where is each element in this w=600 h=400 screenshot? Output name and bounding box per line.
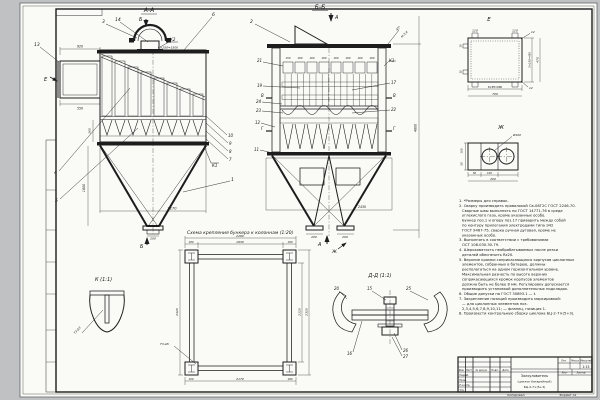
- note-line: соприкасающихся кромок корпусов элементо…: [462, 277, 554, 281]
- callout-16: 16: [347, 351, 353, 356]
- plan-dim-bot-mid: 2170: [236, 377, 244, 381]
- callout-k2: К2: [170, 37, 176, 42]
- dim-hopper-height: 1800: [82, 184, 86, 192]
- dim-tab-left: 110: [472, 29, 478, 33]
- view-zh-label: Ж: [497, 125, 505, 131]
- hole-diameter: Ø100: [512, 132, 521, 137]
- section-b-bottom-label: Б: [140, 244, 144, 250]
- dim-right-chain: 3×150=450: [528, 52, 532, 68]
- bb-dim-2: 190: [310, 56, 315, 60]
- detail-dd-label: Д-Д (1:1): [367, 273, 391, 279]
- callout-5: 5: [55, 198, 58, 204]
- callout-26: 26: [403, 348, 409, 353]
- note-line: должна быть не более 8 мм. Регулировку д…: [462, 282, 569, 286]
- dim-thk-top: 10: [460, 44, 463, 48]
- note-line: 2,3,4,5,6,7,8,9,10,11; — фланец, позиция…: [462, 307, 546, 311]
- note-line: углекислого газа, кроме указанных особо.: [462, 214, 545, 218]
- detail-k-label: К (1:1): [95, 277, 112, 283]
- callout-4: 4: [54, 170, 57, 176]
- plan-dim-top-r: 180: [288, 240, 293, 244]
- callout-k1-bb: К1: [389, 58, 394, 63]
- note-line: ОСТ 108.030.30-79.: [462, 243, 499, 247]
- note-line: — для циклонных элементов поз.: [462, 302, 528, 306]
- callout-22: 22: [391, 107, 397, 112]
- callout-k1: К1: [212, 163, 217, 168]
- note-line: 2. Сварку производить проволокой Св-08Г2…: [459, 204, 576, 208]
- tb-doc: № докум.: [476, 369, 488, 372]
- plan-dim-right-inner: 2120: [298, 308, 302, 316]
- section-a-top-label: А: [334, 15, 339, 21]
- bb-dim-3: 190: [322, 56, 327, 60]
- plan-weld: Т3-Δ5: [160, 342, 169, 346]
- drawing-name-1: Золоуловитель: [521, 374, 548, 378]
- callout-15: 15: [367, 286, 373, 291]
- dim-frame: 2430: [358, 205, 366, 209]
- tb-date: Дата: [502, 369, 509, 372]
- callout-13: 13: [34, 42, 40, 48]
- hole-top-right: 12: [531, 30, 535, 34]
- tb-sheets: Листов: [577, 372, 587, 375]
- note-line: 4. Шероховатость необрабатываемых после …: [459, 248, 559, 252]
- tb-nkontr: Н.контр.: [460, 384, 471, 387]
- plan-dim-top-mid: 1930: [236, 240, 244, 244]
- note-line: 3. Выполнять в соответствии с требования…: [459, 238, 549, 242]
- section-v-right: В: [393, 93, 396, 98]
- section-b-top-label: Б: [139, 17, 143, 23]
- note-line: элементов, собранных в батарею, должны: [462, 263, 546, 267]
- bb-dim-0: 150: [286, 56, 291, 60]
- dim-pitch: 6×250=1500: [158, 46, 178, 50]
- bb-dim-6: 190: [358, 56, 363, 60]
- drawing-name-3: БЦ-2-7×(5+3): [524, 385, 546, 389]
- dim-height: 4800: [414, 124, 418, 132]
- note-line: 5. Верхние кромки соприкасающихся корпус…: [459, 258, 575, 262]
- plan-dim-right-outer: 2320: [305, 308, 309, 316]
- view-bb-label: Б-Б: [315, 4, 325, 11]
- callout-25: 25: [406, 286, 412, 291]
- plan-dim-top-total: 2290: [236, 234, 244, 238]
- callout-17: 17: [391, 80, 397, 85]
- tb-list: Лист: [466, 369, 473, 372]
- dim-bot-total: 200: [490, 177, 496, 181]
- tb-scale-lbl: Масштаб: [580, 360, 592, 363]
- format-label: Формат A1: [559, 393, 576, 397]
- note-line: Максимальная разность по высоте верхних: [462, 273, 548, 277]
- drawing-name-2: (циклон батарейный): [517, 380, 551, 384]
- section-v-left: В: [261, 93, 264, 98]
- dim-bottom-total: 700: [492, 92, 498, 96]
- hole-bottom-right: 12: [529, 86, 533, 90]
- dim-hopper-width: 2170: [167, 207, 177, 211]
- callout-1: 1: [231, 177, 234, 183]
- callout-19: 19: [257, 83, 263, 88]
- tb-razrab: Разраб.: [460, 374, 470, 377]
- callout-20: 20: [334, 286, 340, 291]
- callout-27: 27: [403, 354, 409, 359]
- note-line: указанных особо.: [462, 233, 496, 237]
- tb-scale-value: 1:15: [582, 365, 589, 369]
- note-line: 8. Произвести контрольную сборку циклона…: [459, 312, 574, 316]
- bb-dim-7: 190: [370, 56, 375, 60]
- callout-11: 11: [254, 147, 259, 152]
- plan-dim-top-l: 180: [189, 240, 194, 244]
- note-line: по контуру прилегания электродами типа Э…: [462, 224, 553, 228]
- dim-bot-2: 100: [487, 171, 492, 175]
- dim-thk-bot: 10: [460, 70, 463, 74]
- dim-bot-1: 50: [473, 171, 477, 175]
- tb-izm: Изм.: [459, 369, 465, 372]
- note-line: 7. Закрепление позиций производить марки…: [459, 297, 561, 301]
- dim-right-total: 470: [536, 57, 540, 63]
- dim-bottom-chain: 8×85=680: [488, 85, 503, 89]
- dim-plate: 160: [88, 128, 92, 134]
- dim-left-top: 100: [460, 148, 464, 153]
- section-a-bottom-label: А: [317, 242, 322, 248]
- callout-10: 10: [228, 133, 234, 138]
- drawing-sheet: А-А Б: [0, 0, 600, 400]
- callout-2: 2: [250, 19, 253, 25]
- plan-dim-bot-l: 100: [189, 377, 194, 381]
- callout-23: 23: [256, 108, 262, 113]
- bb-dim-1: 190: [298, 56, 303, 60]
- note-line: Сварные швы выполнять по ГОСТ 14771-76 в…: [462, 209, 563, 213]
- plan-dim-left: 2420: [175, 308, 179, 316]
- tb-sheet: Лист: [561, 372, 568, 375]
- note-line: 1. *Размеры для справок.: [459, 199, 509, 203]
- dim-inlet-width: 920: [77, 45, 83, 49]
- tb-prov: Пров.: [460, 379, 467, 382]
- note-line: 6. Общие допуски по ГОСТ 30893.1 — t.: [459, 292, 536, 296]
- bb-dim-5: 190: [346, 56, 351, 60]
- copied-label: Копировал: [507, 393, 524, 397]
- callout-3: 3: [102, 19, 105, 25]
- dim-inlet-height: 550: [77, 107, 83, 111]
- callout-6: 6: [212, 12, 215, 18]
- note-line: деталей обеспечить Rz20.: [462, 253, 513, 257]
- dim-tab-right: 110: [512, 29, 518, 33]
- note-line: производить установкой дополнительных по…: [462, 287, 568, 291]
- dim-outlet-left: 200: [311, 235, 317, 239]
- tb-utv: Утв.: [460, 389, 465, 392]
- note-line: Бункер поз.1 и опору поз.17 приварить ме…: [462, 219, 566, 223]
- tb-lit: Лит.: [561, 360, 567, 363]
- bb-dim-4: 190: [334, 56, 339, 60]
- callout-12: 12: [255, 120, 261, 125]
- dim-left-bot: 50: [460, 162, 464, 166]
- plan-dim-bot-r: 180: [288, 377, 293, 381]
- view-zh-arrow-label: Ж: [331, 249, 337, 255]
- dim-outlet-right: 200: [342, 235, 348, 239]
- view-aa-label: А-А: [143, 7, 154, 14]
- note-line: ГОСТ 9467-75, сварка ручная дуговая, кро…: [462, 228, 557, 232]
- callout-21: 21: [257, 58, 262, 63]
- tb-sign: Подп.: [491, 369, 498, 372]
- view-e-label: Е: [487, 17, 491, 23]
- note-line: располагаться на одном горизонтальном ур…: [462, 268, 559, 272]
- callout-24: 24: [256, 99, 262, 104]
- dim-outlet: 200: [150, 237, 156, 241]
- tb-mass: Масса: [571, 360, 579, 363]
